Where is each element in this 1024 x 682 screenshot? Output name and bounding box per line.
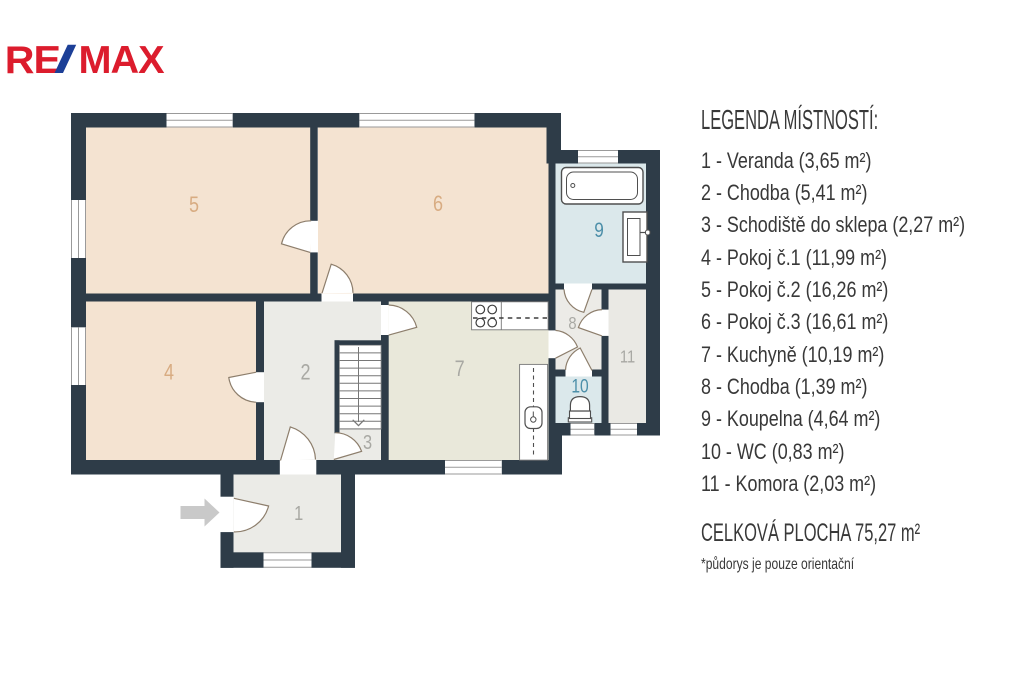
svg-text:7: 7 — [455, 357, 465, 381]
svg-text:3: 3 — [363, 430, 372, 453]
svg-text:10: 10 — [571, 375, 588, 397]
svg-text:5: 5 — [189, 193, 199, 217]
svg-text:6: 6 — [433, 192, 443, 216]
svg-text:9: 9 — [594, 220, 604, 243]
svg-text:11: 11 — [620, 347, 635, 367]
svg-text:1: 1 — [294, 501, 303, 524]
svg-text:2: 2 — [300, 361, 310, 385]
svg-text:MAX: MAX — [79, 39, 165, 81]
svg-text:8: 8 — [568, 314, 576, 334]
svg-text:RE: RE — [5, 39, 61, 81]
svg-text:4: 4 — [164, 361, 174, 385]
